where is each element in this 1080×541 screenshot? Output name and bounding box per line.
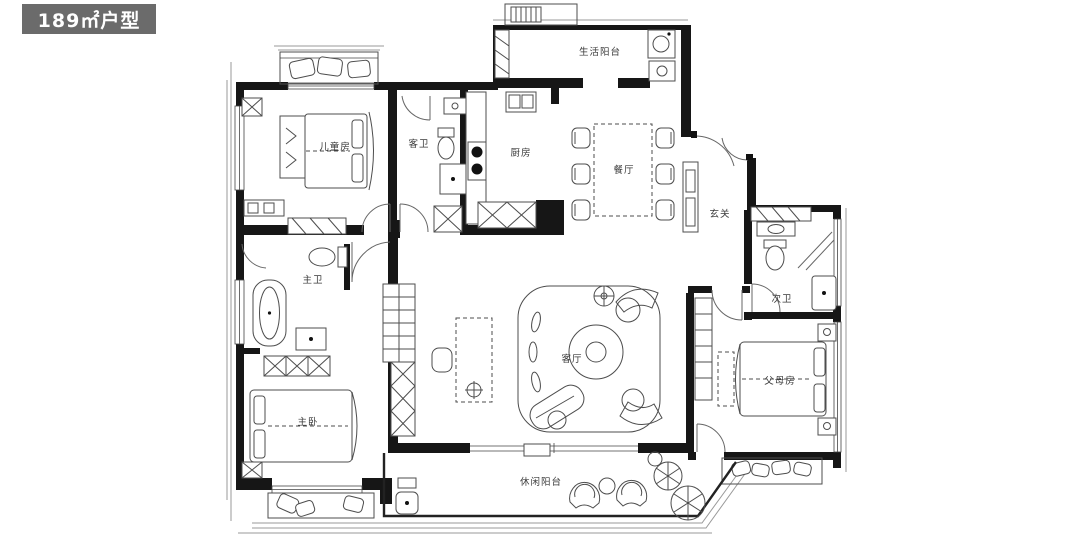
armchair-top <box>616 289 658 312</box>
floorplan-page: 189㎡户型 <box>0 0 1080 541</box>
coffee-table <box>569 325 623 379</box>
label-service-balcony: 生活阳台 <box>579 46 621 58</box>
shoe-cabinet <box>683 162 698 232</box>
door-arc-guest-bath <box>402 96 430 120</box>
label-children-room: 儿童房 <box>319 141 351 153</box>
room-second-bath <box>751 207 836 310</box>
label-master-bath: 主卫 <box>302 274 323 286</box>
armchair-bottom <box>620 402 662 425</box>
washing-machine <box>648 30 675 58</box>
door-arc-hallway <box>400 204 428 232</box>
room-kitchen <box>466 92 536 228</box>
room-master-suite <box>242 200 357 478</box>
room-living <box>383 206 662 436</box>
balcony-table <box>599 478 615 494</box>
room-foyer <box>683 162 698 232</box>
label-foyer: 玄关 <box>709 208 730 220</box>
door-arc-parents-balcony <box>697 424 725 452</box>
label-living-room: 客厅 <box>561 353 582 365</box>
balcony-sink <box>649 61 675 81</box>
label-master-bedroom: 主卧 <box>297 416 318 428</box>
label-second-bath: 次卫 <box>771 293 792 305</box>
floorplan-drawing: 儿童房 客卫 厨房 生活阳台 餐厅 玄关 次卫 父母房 客厅 主卫 主卧 休闲阳… <box>0 0 1080 541</box>
plants <box>648 452 705 520</box>
label-guest-bath: 客卫 <box>408 138 429 150</box>
label-dining-room: 餐厅 <box>613 164 634 176</box>
parents-wardrobe <box>695 298 712 400</box>
room-children <box>242 98 374 190</box>
room-service-balcony <box>495 4 675 81</box>
chaise <box>526 381 589 434</box>
door-arc-master-vanity <box>242 244 266 268</box>
door-arc-children <box>362 204 390 232</box>
shower-door-line <box>798 232 832 268</box>
master-toilet <box>309 248 335 266</box>
label-leisure-balcony: 休闲阳台 <box>520 476 562 488</box>
label-kitchen: 厨房 <box>510 147 531 159</box>
door-arc-parents <box>712 290 742 320</box>
entry-door-small-leaf <box>722 138 748 160</box>
door-arc-master-suite <box>352 242 390 282</box>
label-parents-room: 父母房 <box>764 375 796 387</box>
